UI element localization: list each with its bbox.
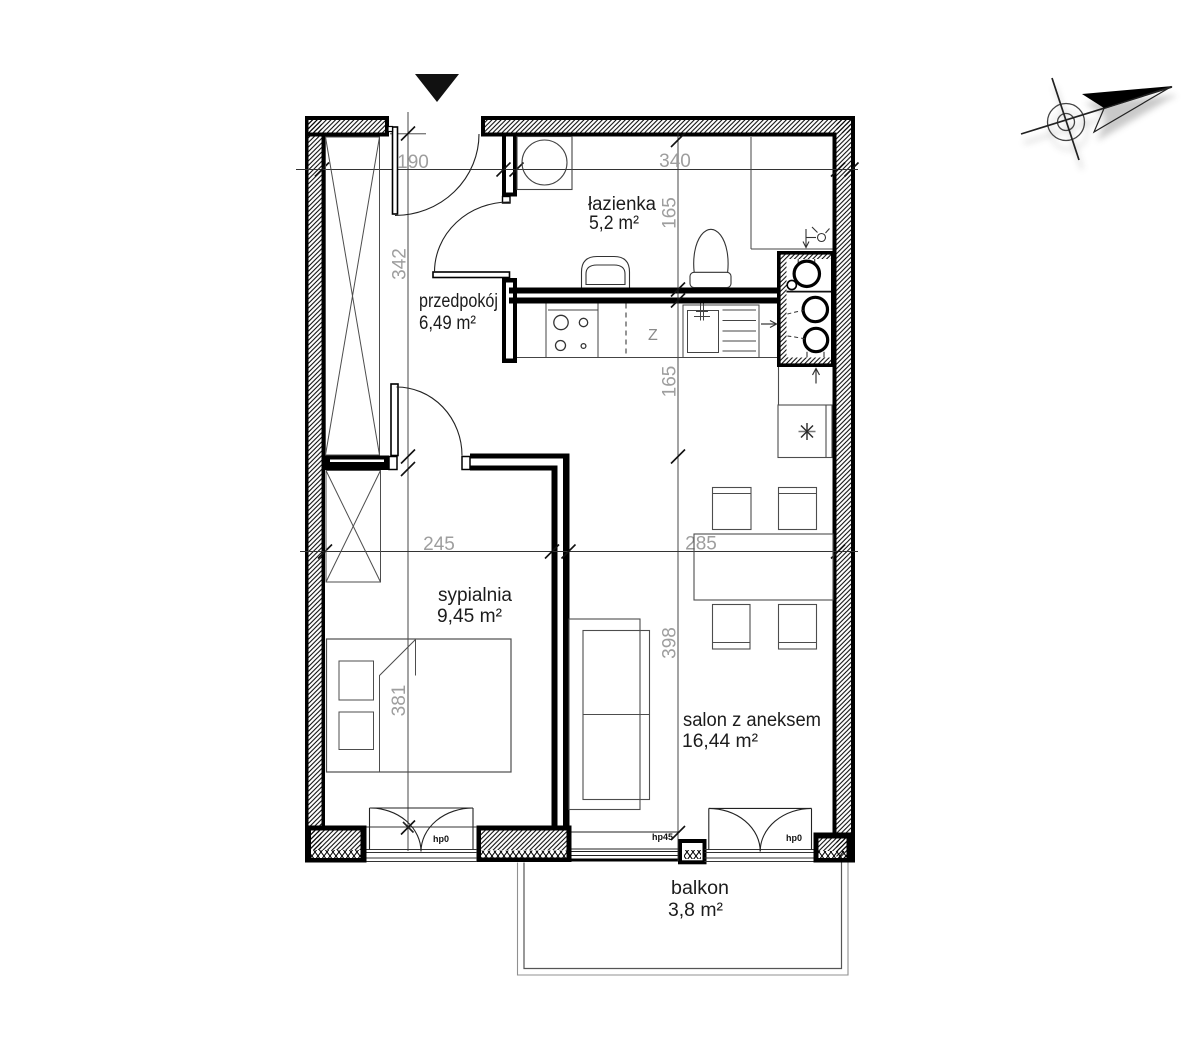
svg-text:340: 340	[659, 151, 691, 172]
svg-text:hp0: hp0	[433, 834, 449, 844]
svg-text:165: 165	[660, 197, 681, 229]
svg-text:5,2 m²: 5,2 m²	[589, 213, 639, 234]
svg-text:342: 342	[390, 248, 411, 280]
svg-text:balkon: balkon	[671, 878, 729, 899]
svg-text:salon z aneksem: salon z aneksem	[683, 710, 821, 731]
svg-text:przedpokój: przedpokój	[419, 291, 498, 312]
svg-text:398: 398	[660, 627, 681, 659]
svg-text:381: 381	[389, 685, 410, 717]
svg-text:190: 190	[397, 152, 429, 173]
svg-text:sypialnia: sypialnia	[438, 585, 512, 606]
svg-text:hp0: hp0	[786, 833, 802, 843]
svg-text:9,45 m²: 9,45 m²	[437, 606, 502, 627]
svg-text:285: 285	[685, 534, 717, 555]
svg-text:6,49 m²: 6,49 m²	[419, 313, 476, 334]
svg-text:Z: Z	[648, 327, 658, 344]
svg-text:łazienka: łazienka	[588, 194, 656, 215]
svg-text:16,44 m²: 16,44 m²	[682, 731, 758, 752]
svg-text:245: 245	[423, 534, 455, 555]
svg-text:165: 165	[660, 366, 681, 398]
svg-text:3,8 m²: 3,8 m²	[668, 900, 723, 921]
svg-text:hp45: hp45	[652, 832, 673, 842]
